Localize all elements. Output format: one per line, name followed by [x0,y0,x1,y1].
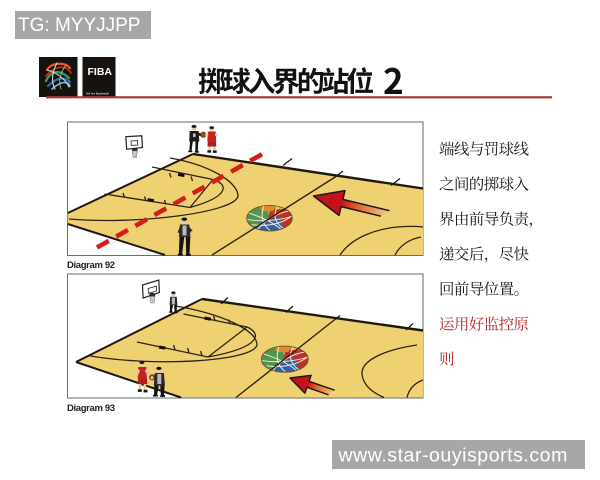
svg-text:www.star-ouyisports.com: www.star-ouyisports.com [338,445,568,467]
svg-text:Diagram 93: Diagram 93 [67,403,115,414]
svg-text:Diagram 92: Diagram 92 [67,260,115,271]
svg-text:We Are Basketball: We Are Basketball [86,92,109,96]
svg-text:FIBA: FIBA [88,66,113,78]
svg-text:TG: MYYJJPP: TG: MYYJJPP [18,15,140,36]
